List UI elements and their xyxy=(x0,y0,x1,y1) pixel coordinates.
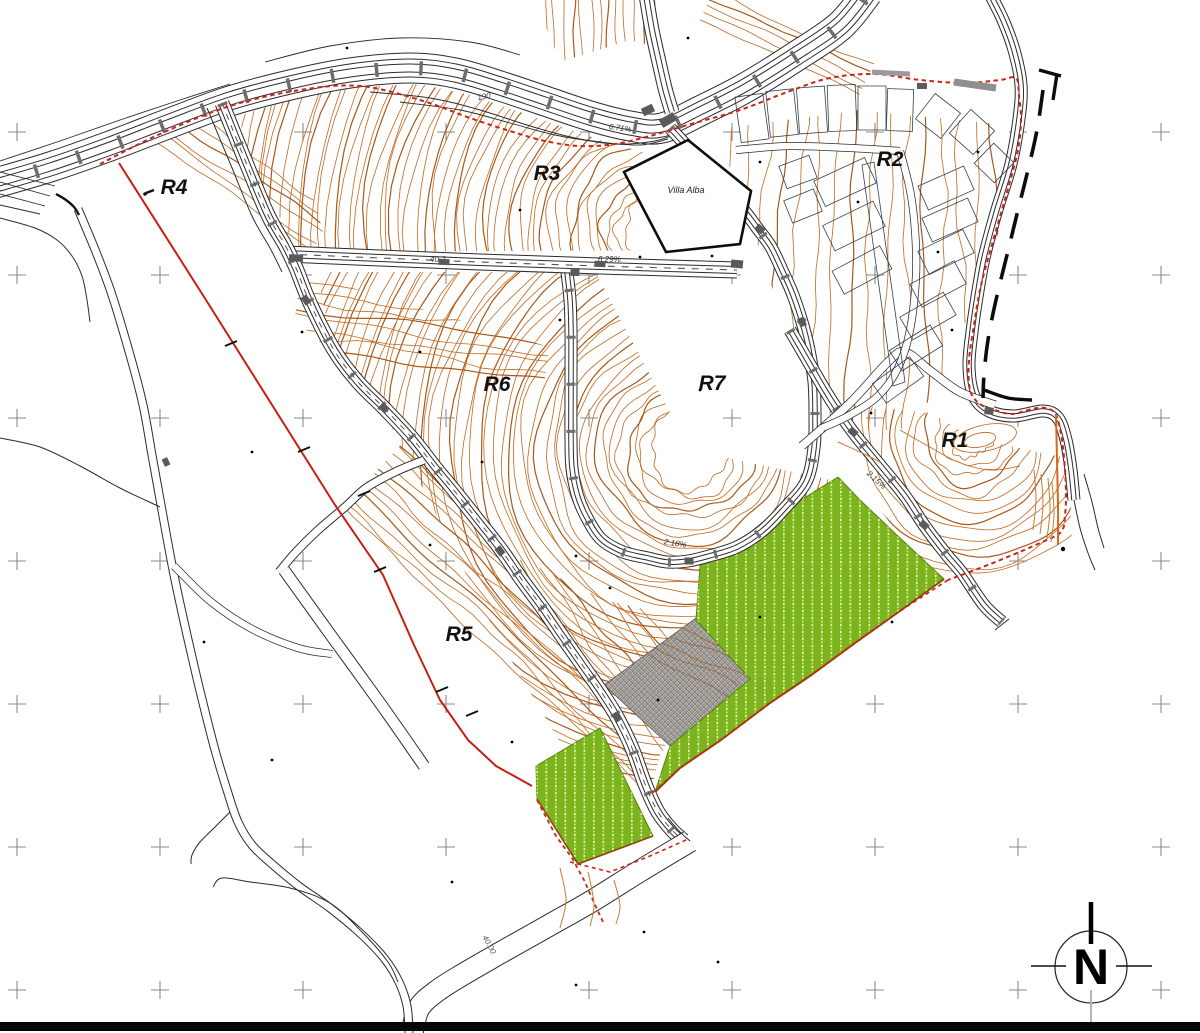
svg-text:R6: R6 xyxy=(484,373,511,396)
svg-text:R3: R3 xyxy=(534,162,561,185)
svg-text:R2: R2 xyxy=(877,148,904,171)
svg-text:R5: R5 xyxy=(446,623,473,646)
svg-text:Villa Alba: Villa Alba xyxy=(667,185,704,195)
svg-text:R4: R4 xyxy=(161,176,188,199)
svg-text:R7: R7 xyxy=(699,372,727,395)
svg-text:N: N xyxy=(1073,939,1109,995)
